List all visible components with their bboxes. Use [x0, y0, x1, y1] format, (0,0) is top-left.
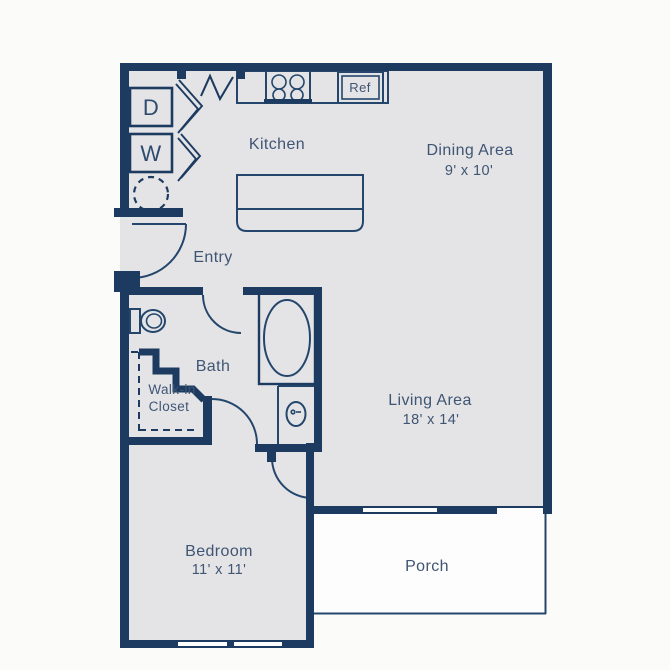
living-area-dims: 18' x 14' [403, 412, 460, 428]
bifold-jamb-right [237, 63, 245, 79]
living-bottom-wall [437, 506, 497, 514]
bedroom-top-wall [255, 444, 314, 452]
floorplan-svg: Ref D W [0, 0, 670, 670]
porch-opening-header [497, 506, 543, 508]
living-area-label: Living Area [388, 392, 472, 409]
bedroom-door-stub [267, 452, 276, 462]
kitchen-label: Kitchen [249, 136, 305, 153]
bedroom-dims: 11' x 11' [192, 562, 247, 578]
stove-base [264, 99, 312, 104]
bedroom-bottom-wall [120, 640, 178, 648]
washer-letter: W [140, 141, 161, 166]
window-line [234, 646, 282, 648]
window-line [363, 506, 437, 508]
wall-right [543, 63, 552, 514]
walk-in-closet-label-line1: Walk-in [148, 382, 195, 397]
laundry-bottom-wall [114, 208, 183, 217]
living-bottom-wall [313, 506, 363, 514]
window-line [178, 640, 227, 642]
porch-label: Porch [405, 558, 449, 575]
bedroom-label: Bedroom [185, 543, 253, 560]
wall-left-upper [120, 63, 129, 208]
dining-area-dims: 9' x 10' [445, 163, 493, 179]
window-line [234, 640, 282, 642]
living-bottom-wall [543, 506, 552, 514]
bath-label: Bath [196, 358, 231, 375]
entry-label: Entry [193, 249, 232, 266]
walk-in-closet-label-line2: Closet [149, 399, 190, 414]
hall-wall-stub [203, 396, 212, 445]
bath-living-wall [314, 287, 322, 452]
bifold-jamb-left [177, 63, 186, 79]
window-line [178, 646, 227, 648]
window-line [363, 512, 437, 514]
dining-area-label: Dining Area [426, 142, 513, 159]
bedroom-window-mullion [227, 640, 234, 648]
bath-top-wall [243, 287, 322, 295]
closet-bottom-wall [120, 437, 203, 445]
bedroom-right-wall [306, 443, 314, 648]
fridge-label: Ref [349, 80, 370, 95]
dryer-letter: D [143, 95, 159, 120]
wall-left-lower [120, 287, 129, 648]
floorplan-page: Ref D W [0, 0, 670, 670]
bath-top-wall [120, 287, 203, 295]
